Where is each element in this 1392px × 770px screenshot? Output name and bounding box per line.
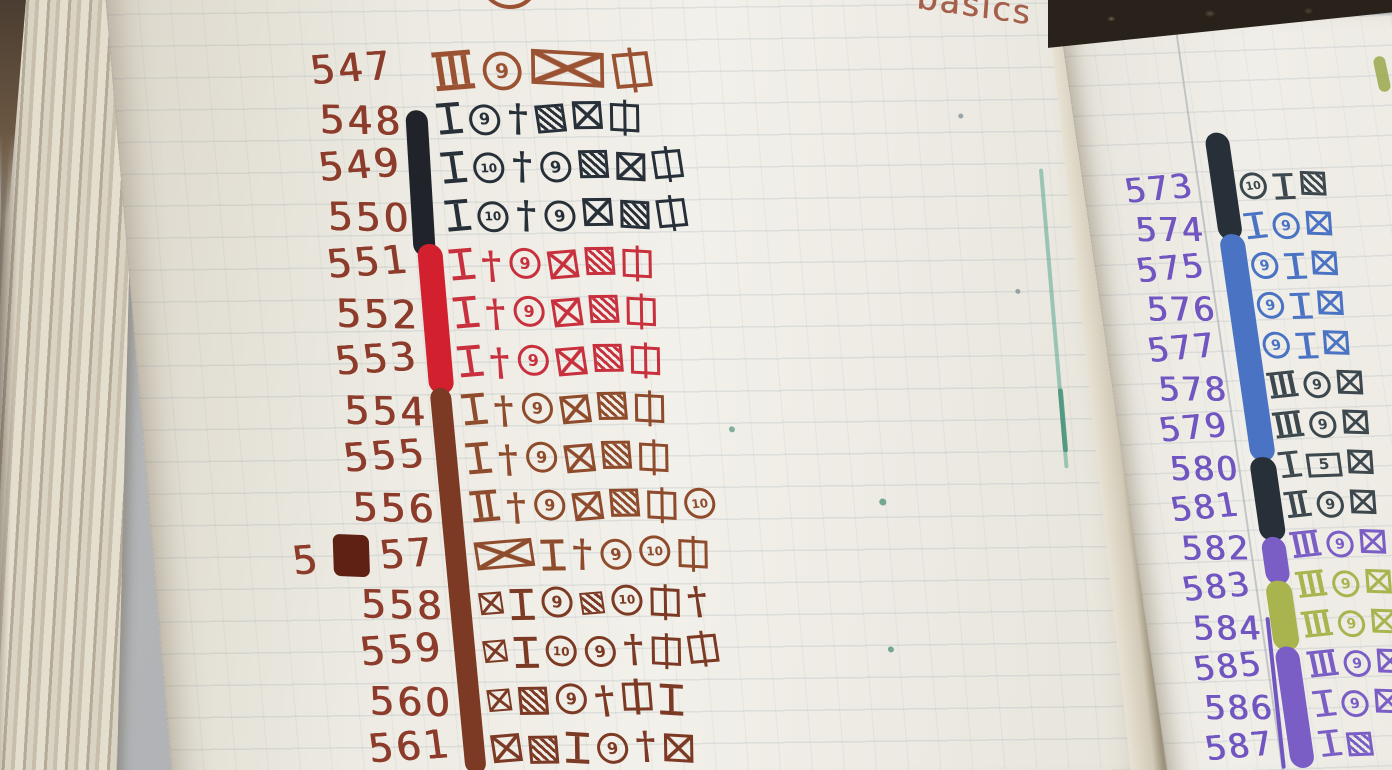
crossed-box-symbol bbox=[1336, 370, 1363, 395]
i-beam-symbol bbox=[1312, 689, 1337, 717]
i-beam-symbol bbox=[660, 683, 684, 715]
symbol-sequence: 9 bbox=[1249, 248, 1339, 280]
symbol-sequence: †910 bbox=[470, 487, 717, 523]
i-beam-2-symbol bbox=[469, 490, 501, 523]
circled-9-symbol: 9 bbox=[1271, 212, 1302, 240]
symbol-sequence: 9 bbox=[1283, 486, 1377, 519]
crossed-box-symbol bbox=[572, 101, 603, 129]
crossed-box-symbol bbox=[551, 297, 584, 327]
crossed-box-small-symbol bbox=[478, 591, 504, 615]
circled-9-symbol: 9 bbox=[1254, 290, 1286, 320]
circled-10-symbol: 10 bbox=[638, 535, 672, 566]
day-number: 547 bbox=[206, 46, 396, 97]
day-number: 557 bbox=[247, 529, 438, 584]
symbol-sequence: 9 bbox=[1289, 526, 1387, 559]
lined-box-symbol bbox=[621, 683, 652, 711]
day-number: 576 bbox=[1110, 292, 1218, 325]
tracker-rows-left: 54795489†54910†955010†9551†9552†9553†955… bbox=[206, 38, 1144, 770]
notebook-photo: basics 54795489†54910†955010†9551†9552†9… bbox=[0, 0, 1392, 770]
dagger-symbol: † bbox=[622, 633, 644, 663]
symbol-sequence: 9 bbox=[1312, 686, 1392, 719]
circled-9-symbol: 9 bbox=[468, 104, 502, 135]
circled-9-symbol: 9 bbox=[541, 586, 573, 619]
day-number: 553 bbox=[231, 337, 421, 388]
circled-9-symbol: 9 bbox=[526, 441, 558, 474]
box-5-symbol: 5 bbox=[1305, 452, 1342, 477]
symbol-sequence: †9 bbox=[449, 245, 653, 280]
day-number: 558 bbox=[257, 583, 445, 626]
day-number: 560 bbox=[266, 680, 454, 723]
circled-9-symbol: 9 bbox=[1307, 411, 1338, 439]
day-number: 574 bbox=[1099, 213, 1207, 246]
circled-9-symbol: 9 bbox=[556, 683, 588, 716]
lined-box-symbol bbox=[651, 149, 684, 179]
crossed-box-wide-symbol bbox=[531, 49, 604, 88]
lined-box-symbol bbox=[651, 636, 681, 666]
lined-box-symbol bbox=[678, 539, 708, 569]
dagger-symbol: † bbox=[516, 199, 536, 230]
circled-9-symbol: 9 bbox=[583, 635, 619, 668]
symbol-sequence: 9 bbox=[1261, 328, 1351, 360]
day-number: 587 bbox=[1167, 726, 1276, 768]
lined-box-symbol bbox=[631, 345, 661, 375]
symbol-sequence: 109† bbox=[482, 632, 719, 669]
day-number: 585 bbox=[1156, 646, 1265, 688]
tally-3-symbol bbox=[431, 49, 475, 91]
dagger-symbol: † bbox=[493, 395, 515, 425]
day-number: 549 bbox=[214, 143, 404, 194]
day-number: 586 bbox=[1167, 691, 1275, 724]
symbol-sequence: 10†9 bbox=[441, 147, 684, 184]
crossed-box-symbol bbox=[582, 198, 613, 226]
cropped-circle-symbol bbox=[476, 0, 541, 9]
crossed-box-small-symbol bbox=[486, 688, 512, 712]
circled-9-symbol: 9 bbox=[1325, 530, 1356, 558]
crossed-box-symbol bbox=[664, 733, 694, 763]
i-beam-symbol bbox=[456, 344, 484, 377]
symbol-sequence: 9† bbox=[437, 99, 641, 135]
dagger-symbol: † bbox=[635, 730, 657, 760]
day-number: 583 bbox=[1144, 567, 1253, 609]
symbol-sequence: 5 bbox=[1278, 448, 1375, 478]
circled-9-symbol: 9 bbox=[1260, 330, 1292, 360]
symbol-sequence: 9 bbox=[1243, 208, 1333, 241]
day-number: 584 bbox=[1156, 611, 1264, 644]
circled-9-symbol: 9 bbox=[509, 247, 541, 280]
symbol-sequence: 9† bbox=[491, 729, 695, 765]
hatched-box-symbol bbox=[518, 687, 549, 715]
tally-3-symbol bbox=[1295, 569, 1328, 598]
crossed-box-symbol bbox=[490, 733, 523, 763]
symbol-sequence: 10 bbox=[1238, 168, 1328, 200]
tally-3-symbol bbox=[1300, 609, 1333, 638]
symbol-sequence: 9 bbox=[432, 46, 652, 91]
dagger-symbol: † bbox=[497, 444, 519, 474]
lined-box-symbol bbox=[650, 588, 680, 618]
i-beam-symbol bbox=[448, 248, 476, 281]
hatched-box-symbol bbox=[601, 440, 632, 468]
symbol-sequence: 9 bbox=[1301, 606, 1392, 639]
day-number: 581 bbox=[1133, 487, 1242, 529]
circled-10-symbol: 10 bbox=[1237, 171, 1269, 201]
crossed-box-symbol bbox=[616, 152, 646, 182]
crossed-box-symbol bbox=[1311, 251, 1338, 276]
circled-10-symbol: 10 bbox=[545, 634, 577, 667]
hatched-box-symbol bbox=[596, 392, 627, 420]
i-beam-symbol bbox=[566, 731, 590, 763]
symbol-sequence: 9 bbox=[1306, 645, 1392, 678]
symbol-sequence: 910† bbox=[478, 583, 709, 620]
symbol-sequence: 10†9 bbox=[445, 196, 688, 233]
day-number: 582 bbox=[1144, 531, 1252, 564]
hatched-box-symbol bbox=[609, 489, 640, 517]
crossed-box-small-symbol bbox=[482, 640, 508, 664]
crossed-box-symbol bbox=[1359, 529, 1386, 554]
day-number: 578 bbox=[1122, 372, 1230, 405]
i-beam-symbol bbox=[1272, 172, 1296, 199]
hatched-box-symbol bbox=[1300, 171, 1327, 196]
hatched-box-symbol bbox=[534, 104, 567, 134]
i-beam-symbol bbox=[444, 199, 472, 232]
tally-3-symbol bbox=[1266, 370, 1299, 399]
hatched-box-symbol bbox=[578, 150, 609, 178]
crossed-box-symbol bbox=[1317, 290, 1344, 315]
symbol-sequence: †9 bbox=[453, 294, 657, 329]
crossed-box-symbol bbox=[1371, 609, 1392, 634]
circled-9-symbol: 9 bbox=[598, 538, 634, 571]
crossed-box-symbol bbox=[1305, 211, 1332, 236]
symbol-sequence: 9 bbox=[1266, 367, 1364, 400]
circled-10-symbol: 10 bbox=[610, 584, 644, 615]
circled-9-symbol: 9 bbox=[481, 52, 523, 91]
circled-9-symbol: 9 bbox=[522, 392, 554, 425]
dagger-symbol: † bbox=[512, 151, 532, 182]
circled-9-symbol: 9 bbox=[1330, 570, 1361, 598]
hatched-box-symbol bbox=[620, 200, 650, 230]
hatched-box-symbol bbox=[528, 735, 559, 763]
day-number: 555 bbox=[239, 434, 429, 485]
i-beam-symbol bbox=[514, 637, 540, 668]
dagger-symbol: † bbox=[484, 298, 506, 328]
crossed-box-symbol bbox=[555, 346, 588, 376]
i-beam-symbol bbox=[1317, 729, 1342, 757]
day-number: 561 bbox=[264, 725, 454, 770]
hatched-box-symbol bbox=[1346, 731, 1374, 756]
crossed-box-wide-symbol bbox=[473, 538, 535, 571]
ink-blot bbox=[333, 534, 371, 577]
dagger-symbol: † bbox=[685, 585, 709, 616]
lined-box-symbol bbox=[610, 103, 640, 133]
dagger-symbol: † bbox=[593, 684, 617, 715]
symbol-sequence: 9† bbox=[486, 681, 684, 717]
symbol-sequence: †9 bbox=[457, 342, 661, 377]
day-number: 573 bbox=[1087, 168, 1196, 210]
dagger-symbol: † bbox=[508, 102, 528, 133]
circled-9-symbol: 9 bbox=[1342, 650, 1373, 678]
symbol-sequence: 9 bbox=[1295, 566, 1392, 599]
dagger-symbol: † bbox=[505, 492, 527, 522]
symbol-sequence: †9 bbox=[462, 390, 666, 425]
lined-box-symbol bbox=[655, 198, 688, 228]
hatched-box-small-symbol bbox=[579, 591, 605, 615]
tally-3-symbol bbox=[1289, 529, 1322, 558]
day-number: 552 bbox=[232, 293, 420, 336]
circled-9-symbol: 9 bbox=[513, 295, 545, 328]
circled-9-symbol: 9 bbox=[595, 732, 631, 765]
lined-box-symbol bbox=[647, 491, 677, 521]
day-number: 548 bbox=[216, 99, 404, 142]
circled-9-symbol: 9 bbox=[517, 344, 549, 377]
i-beam-symbol bbox=[1243, 211, 1268, 239]
day-number: 577 bbox=[1110, 328, 1219, 370]
symbol-sequence: †9 bbox=[466, 439, 670, 474]
lined-box-symbol bbox=[635, 394, 665, 424]
symbol-sequence: †910 bbox=[474, 535, 709, 572]
tally-3-symbol bbox=[1306, 649, 1339, 678]
lined-box-symbol bbox=[687, 634, 720, 664]
crossed-box-symbol bbox=[1342, 410, 1369, 435]
hatched-box-symbol bbox=[584, 247, 615, 275]
symbol-sequence: 9 bbox=[1255, 288, 1345, 320]
circled-9-symbol: 9 bbox=[1248, 250, 1280, 280]
crossed-box-symbol bbox=[563, 443, 596, 473]
lined-box-symbol bbox=[611, 51, 652, 89]
dagger-symbol: † bbox=[572, 538, 592, 569]
i-beam-symbol bbox=[1277, 450, 1302, 478]
symbol-sequence bbox=[1318, 728, 1374, 757]
day-number: 556 bbox=[249, 486, 437, 529]
circled-9-symbol: 9 bbox=[542, 199, 578, 232]
day-number: 575 bbox=[1099, 248, 1208, 290]
symbol-sequence: 9 bbox=[1272, 407, 1370, 440]
tracker-row: 5619† bbox=[264, 716, 1144, 770]
day-number: 551 bbox=[222, 240, 412, 291]
hatched-box-symbol bbox=[592, 343, 623, 371]
i-beam-symbol bbox=[465, 441, 493, 474]
lined-box-symbol bbox=[622, 248, 652, 278]
day-number: 550 bbox=[224, 196, 412, 239]
i-beam-symbol bbox=[436, 102, 464, 135]
i-beam-symbol bbox=[540, 540, 566, 571]
page-heading: basics bbox=[915, 0, 1033, 32]
circled-10-symbol: 10 bbox=[472, 152, 506, 183]
crossed-box-symbol bbox=[559, 394, 592, 424]
circled-9-symbol: 9 bbox=[1302, 371, 1333, 399]
circled-9-symbol: 9 bbox=[538, 151, 574, 184]
circled-9-symbol: 9 bbox=[1336, 610, 1367, 638]
crossed-box-symbol bbox=[1377, 648, 1392, 673]
day-number: 579 bbox=[1121, 407, 1230, 449]
day-number: 580 bbox=[1133, 452, 1241, 485]
lined-box-symbol bbox=[639, 442, 669, 472]
day-number: 559 bbox=[256, 628, 446, 679]
crossed-box-symbol bbox=[1350, 489, 1377, 514]
lined-box-symbol bbox=[626, 297, 656, 327]
circled-9-symbol: 9 bbox=[534, 489, 566, 522]
i-beam-symbol bbox=[1295, 332, 1319, 359]
i-beam-2-symbol bbox=[1283, 490, 1312, 518]
circled-9-symbol: 9 bbox=[1315, 490, 1346, 518]
i-beam-symbol bbox=[452, 296, 480, 329]
crossed-box-symbol bbox=[546, 249, 579, 279]
i-beam-symbol bbox=[509, 589, 535, 620]
circled-9-symbol: 9 bbox=[1340, 690, 1371, 718]
crossed-box-symbol bbox=[571, 491, 604, 521]
crossed-box-symbol bbox=[1365, 569, 1392, 594]
i-beam-symbol bbox=[1289, 292, 1313, 319]
crossed-box-symbol bbox=[1323, 330, 1350, 355]
dagger-symbol: † bbox=[489, 347, 511, 377]
tally-3-symbol bbox=[1272, 410, 1305, 439]
left-page: basics 54795489†54910†955010†9551†9552†9… bbox=[104, 0, 1145, 770]
crossed-box-symbol bbox=[1374, 689, 1392, 714]
dagger-symbol: † bbox=[480, 250, 502, 280]
i-beam-symbol bbox=[1284, 252, 1308, 279]
i-beam-symbol bbox=[461, 393, 489, 426]
crossed-box-symbol bbox=[1347, 449, 1374, 474]
hatched-box-symbol bbox=[588, 295, 619, 323]
i-beam-symbol bbox=[440, 151, 468, 184]
circled-10-symbol: 10 bbox=[682, 487, 718, 520]
day-number: 554 bbox=[241, 390, 429, 433]
circled-10-symbol: 10 bbox=[476, 201, 510, 232]
